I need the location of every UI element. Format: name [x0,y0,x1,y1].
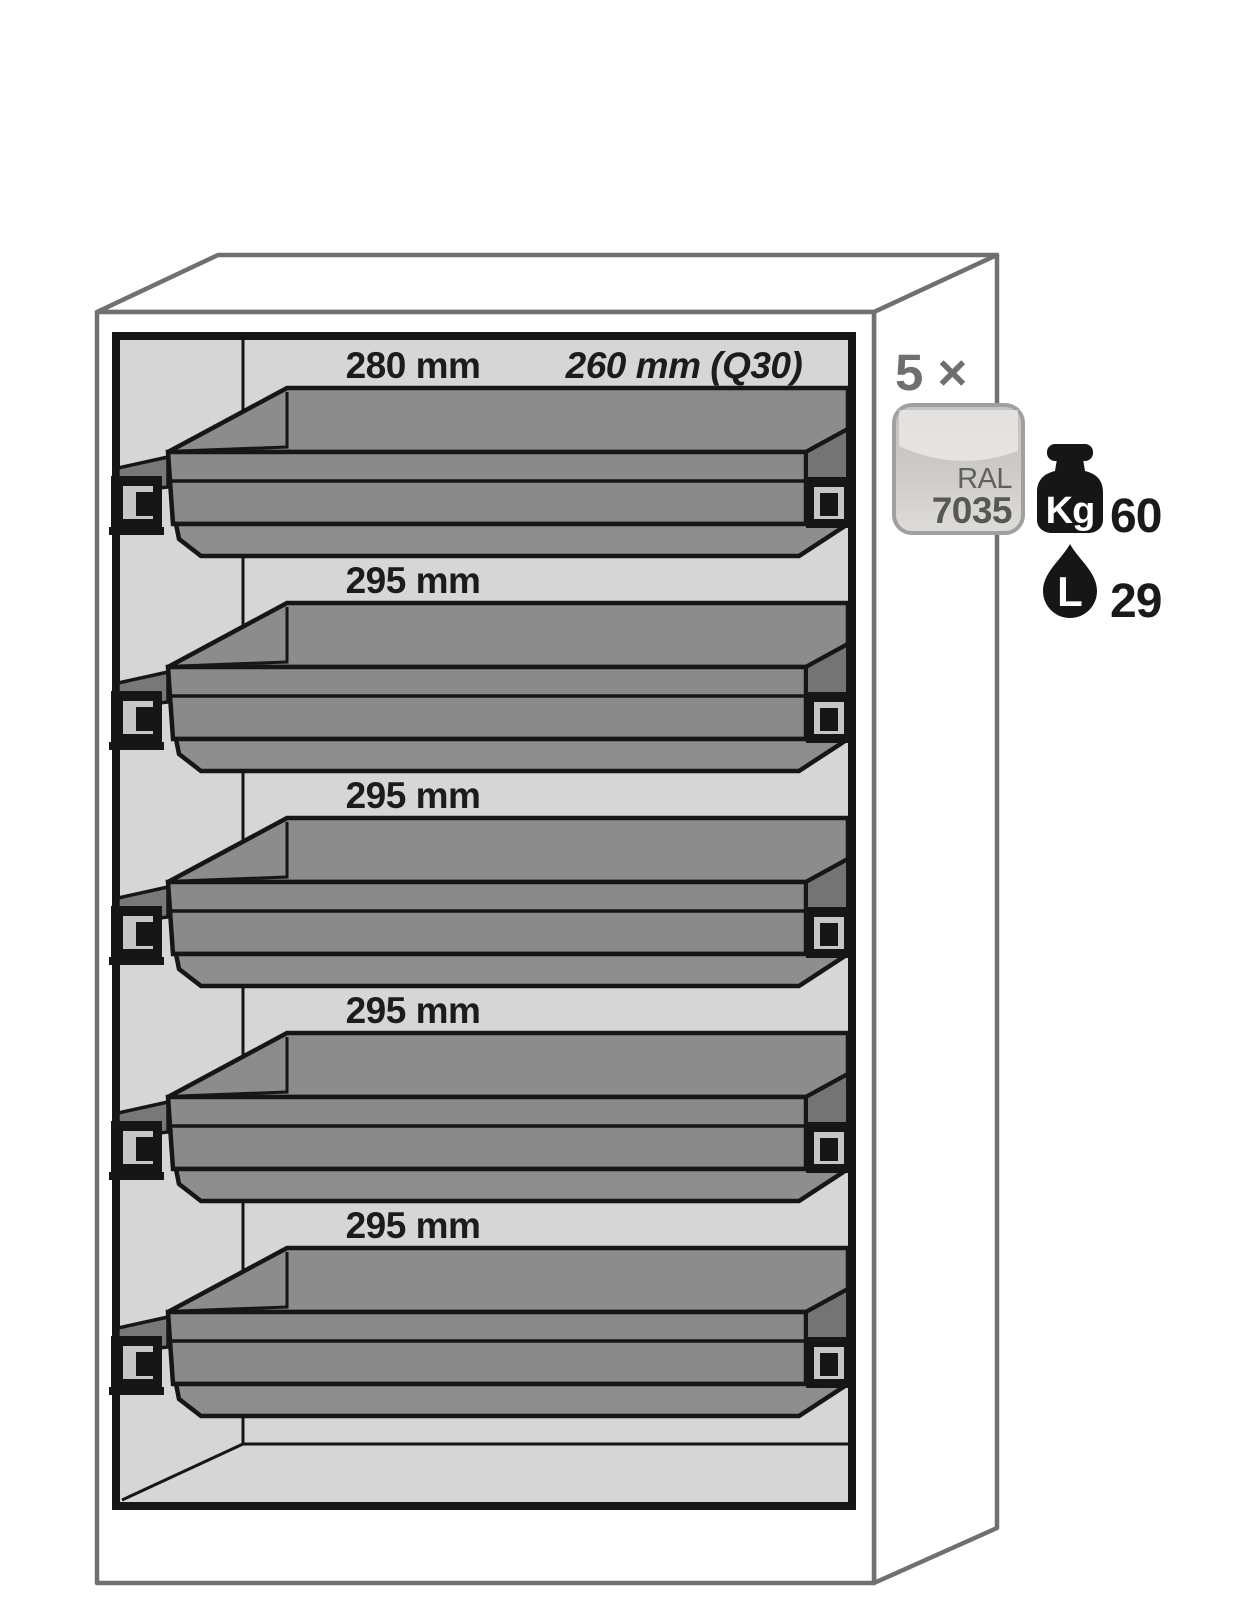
sump-volume-spec: L 29 [1043,544,1161,628]
compartment-2-height-label: 295 mm [346,560,481,601]
compartment-1-depth-label: 260 mm (Q30) [565,345,803,386]
load-capacity-spec: Kg 60 [1037,444,1161,543]
ral-code-label: 7035 [932,490,1012,531]
sump-volume-value: 29 [1110,575,1161,628]
liter-unit-label: L [1057,568,1083,615]
compartment-1-height-label: 280 mm [346,345,481,386]
cabinet-top-face [97,255,997,312]
cabinet-drawer-diagram: 280 mm 260 mm (Q30) 295 mm 295 mm 295 mm… [0,0,1241,1624]
compartment-4-height-label: 295 mm [346,990,481,1031]
ral-color-swatch: RAL 7035 [894,405,1023,533]
compartment-3-height-label: 295 mm [346,775,481,816]
load-capacity-value: 60 [1110,490,1161,543]
weight-unit-label: Kg [1046,490,1095,532]
compartment-5-height-label: 295 mm [346,1205,481,1246]
diagram-canvas: 280 mm 260 mm (Q30) 295 mm 295 mm 295 mm… [0,0,1241,1624]
drawer-count-label: 5 × [895,344,967,401]
